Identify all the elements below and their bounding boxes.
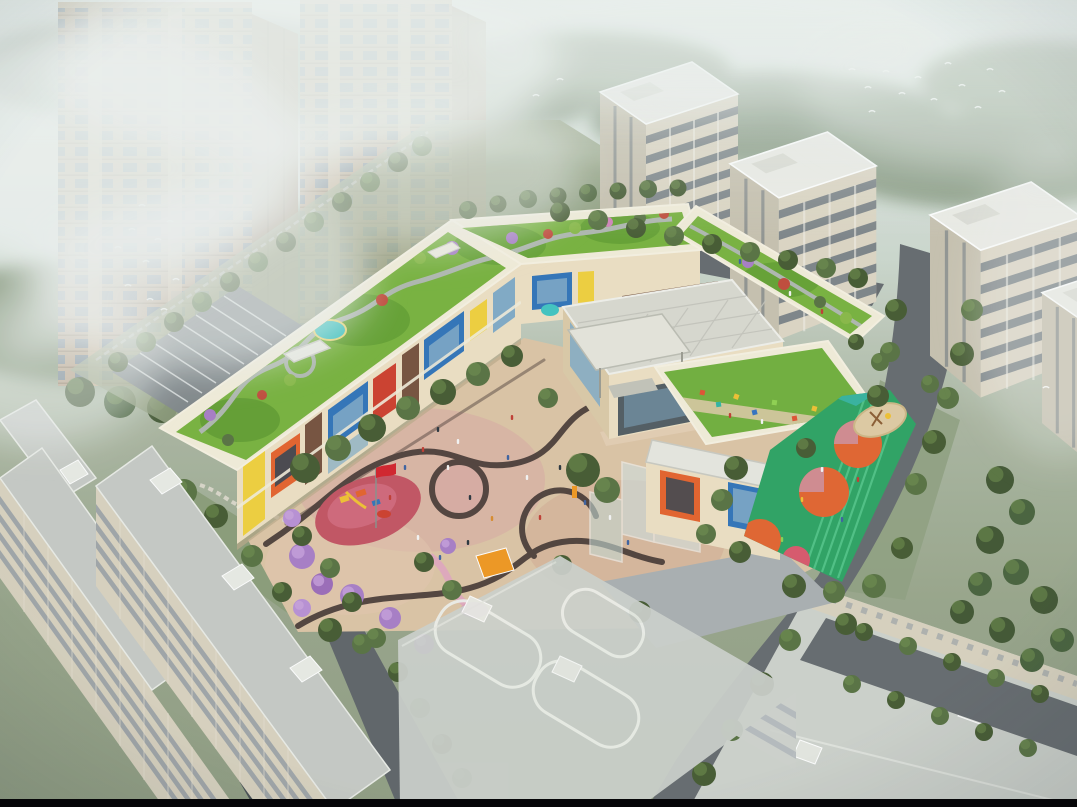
rendering-canvas [0,0,1077,807]
fog-overlay [0,0,1077,807]
aerial-rendering [0,0,1077,807]
letterbox-bar [0,799,1077,807]
